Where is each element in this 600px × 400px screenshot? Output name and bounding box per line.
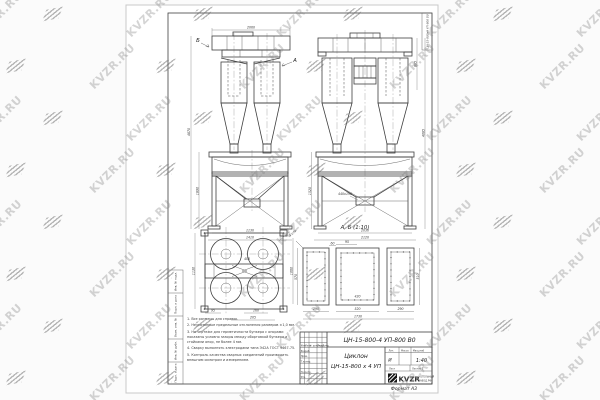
dim-label: 95 bbox=[211, 309, 215, 313]
technical-notes: 1. Все размеры для справок. 2. Неуказанн… bbox=[187, 317, 298, 364]
dim-label: 1520 bbox=[308, 187, 312, 195]
mass-label: Масса bbox=[401, 350, 409, 353]
dim-label: 1730 bbox=[354, 315, 362, 319]
note-line: 2. Неуказанные предельные отклонения раз… bbox=[187, 323, 298, 328]
dim-label: 420 bbox=[354, 295, 360, 299]
sign-row-label: Пров. bbox=[301, 355, 308, 358]
product-name-line2: ЦН-15-800 х 4 УП bbox=[331, 364, 382, 370]
dim-label: 570 bbox=[294, 274, 298, 280]
dim-label: 60 bbox=[330, 241, 334, 245]
margin-stamp-label: Инв. № дубл. bbox=[174, 341, 178, 360]
dim-label: 290 bbox=[397, 307, 403, 311]
product-name-line1: Циклон bbox=[344, 353, 368, 360]
view-arrow-a-label: А bbox=[292, 58, 297, 64]
dim-label: 160 bbox=[253, 309, 259, 313]
dim-label: 1890 bbox=[196, 187, 200, 195]
dim-label: 1130 bbox=[246, 229, 254, 233]
sign-row-label: Утв. bbox=[301, 376, 306, 379]
dim-label: 1410 bbox=[246, 236, 254, 240]
note-line: 4. Сварку выполнять электродами типа Э42… bbox=[187, 346, 298, 351]
lit-value: И bbox=[388, 358, 392, 364]
margin-stamp-label: Подп. и дата bbox=[174, 295, 178, 314]
dim-label: 440х190 bbox=[338, 192, 352, 196]
dim-label: 510 bbox=[416, 273, 420, 279]
sign-row-label: Н.контр. bbox=[301, 371, 312, 374]
dim-label: 2120 bbox=[361, 236, 369, 240]
dim-label: 520 bbox=[354, 307, 360, 311]
title-designation: ЦН-15-800-4 УП-800 В0 bbox=[343, 337, 415, 344]
sign-row-label: Разраб. bbox=[301, 350, 311, 353]
scale-label: Масштаб bbox=[413, 350, 425, 353]
note-line: 3. На чертеже для герметичности бункера … bbox=[187, 330, 298, 345]
detail-view-label: А, Б (1:10) bbox=[340, 225, 370, 231]
dim-label: 2060 bbox=[247, 26, 255, 30]
margin-stamp-label: Инв. № подл. bbox=[174, 272, 178, 291]
margin-stamp-label: Подп. и дата bbox=[174, 363, 178, 382]
dim-label: 290 bbox=[313, 307, 319, 311]
drawing-sheet-page: ЦН-15-800х4 УП-800 В0 Инв. № подл. Подп.… bbox=[0, 0, 600, 400]
dim-label: 1130 bbox=[192, 267, 196, 275]
margin-stamp-label: Взам. инв. № bbox=[174, 318, 178, 337]
drawing-sheet: ЦН-15-800х4 УП-800 В0 Инв. № подл. Подп.… bbox=[0, 0, 600, 400]
note-line: 5. Контроль качества сварных соединений … bbox=[187, 353, 298, 363]
dim-label: 95 bbox=[345, 240, 349, 244]
sheet-count-label: Листов 1 bbox=[412, 368, 424, 371]
dim-label: 885 bbox=[414, 61, 418, 67]
company-tagline: КОТЕЛЬНЫЙ bbox=[419, 376, 435, 379]
scale-value: 1:40 bbox=[416, 358, 427, 364]
company-tagline: ЗАВОД.РФ bbox=[419, 380, 432, 383]
dim-label: 4085 bbox=[422, 129, 426, 137]
dim-label: 4870 bbox=[187, 128, 191, 136]
sheet-number-label: Лист bbox=[389, 368, 396, 371]
lit-label: Лит. bbox=[389, 350, 395, 353]
sign-row-label: Т.контр. bbox=[301, 360, 312, 363]
dim-label: 405 bbox=[244, 257, 250, 261]
corner-stamp-text: ЦН-15-800х4 УП-800 В0 bbox=[426, 14, 430, 48]
format-note: Формат А3 bbox=[391, 386, 417, 392]
company-logo-text: KVZR bbox=[399, 376, 421, 384]
dim-label: 1060 bbox=[290, 267, 294, 275]
note-line: 1. Все размеры для справок. bbox=[187, 317, 298, 322]
view-arrow-b-label: Б bbox=[196, 38, 200, 44]
